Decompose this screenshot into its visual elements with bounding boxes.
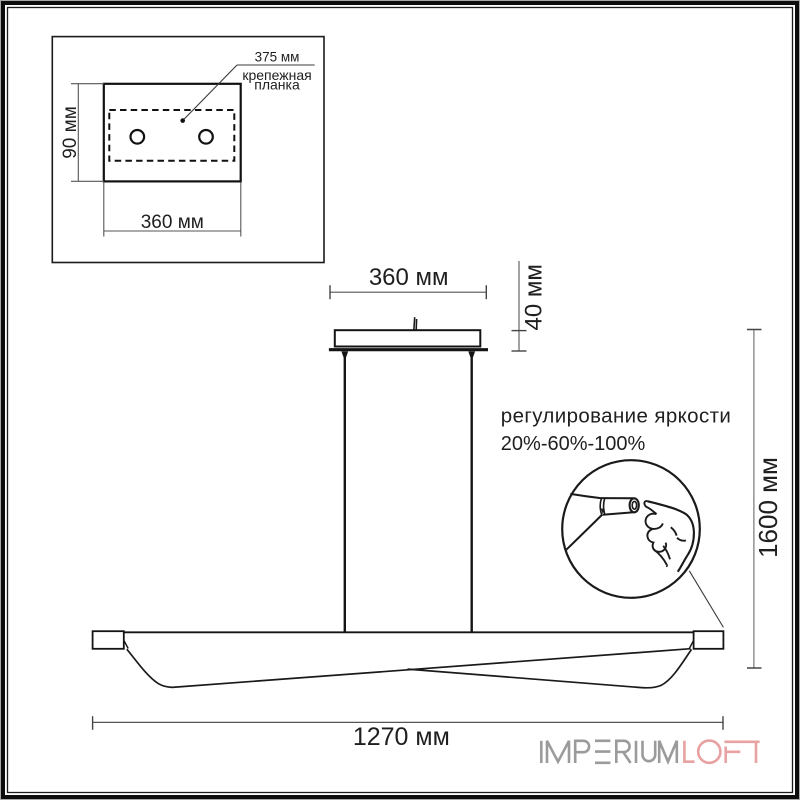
svg-text:регулирование яркости: регулирование яркости [501,405,731,428]
svg-text:360 мм: 360 мм [141,212,204,233]
svg-text:360 мм: 360 мм [369,264,449,291]
svg-text:1270 мм: 1270 мм [353,723,450,751]
svg-text:планка: планка [254,76,300,92]
svg-text:20%-60%-100%: 20%-60%-100% [501,433,646,455]
svg-text:90 мм: 90 мм [60,106,81,159]
svg-text:1600 мм: 1600 мм [753,457,783,558]
svg-text:375 мм: 375 мм [255,50,300,65]
svg-text:40 мм: 40 мм [521,264,548,330]
